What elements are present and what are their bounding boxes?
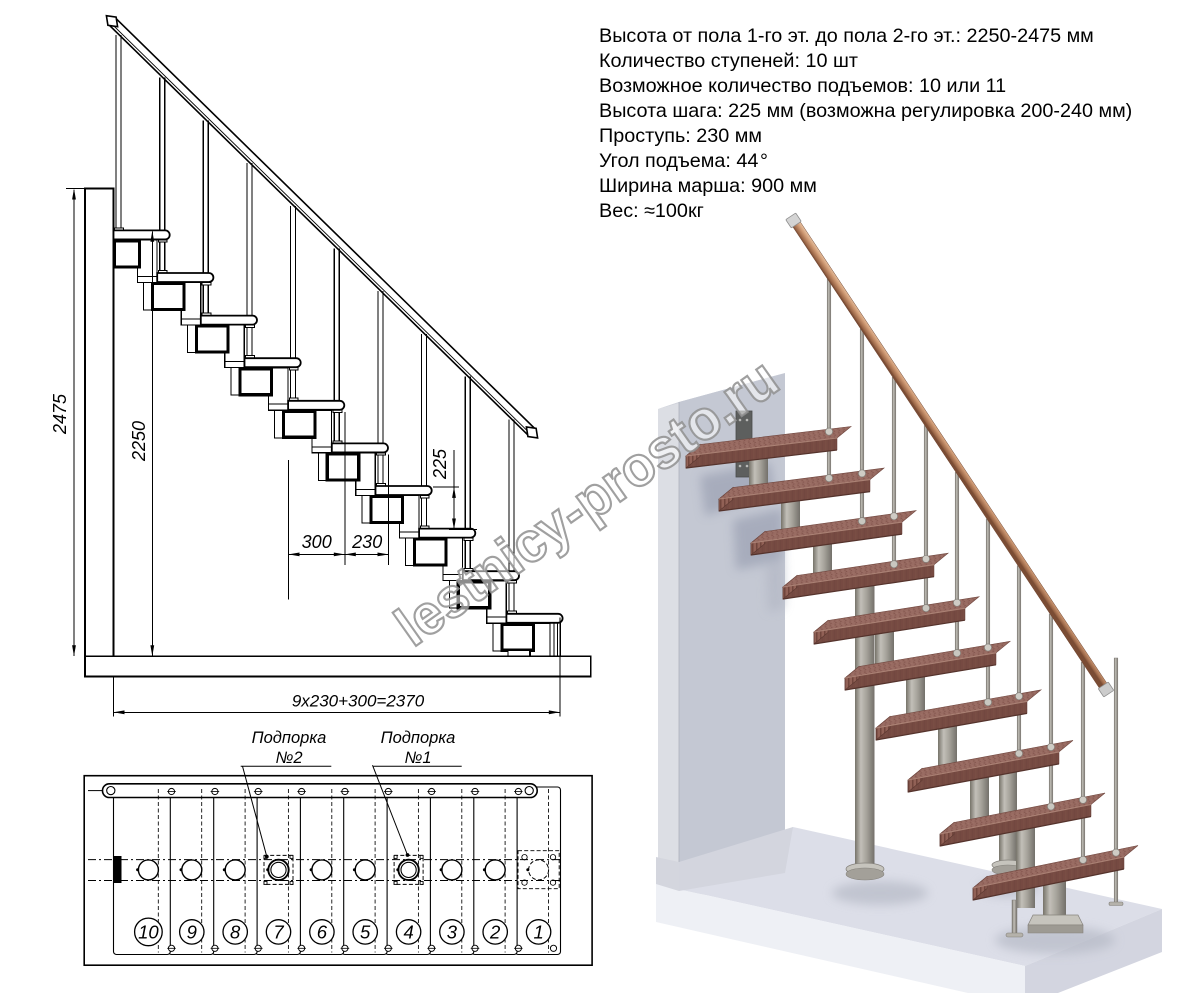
svg-text:Ширина марша: 900 мм: Ширина марша: 900 мм <box>599 175 817 197</box>
svg-text:Возможное количество подъемов:: Возможное количество подъемов: 10 или 11 <box>599 75 1006 97</box>
svg-text:№2: №2 <box>275 749 302 767</box>
svg-text:Подпорка: Подпорка <box>252 729 327 747</box>
svg-text:9: 9 <box>187 921 197 942</box>
svg-text:230: 230 <box>351 532 382 552</box>
svg-text:Угол подъема: 44 °: Угол подъема: 44 ° <box>599 150 768 172</box>
svg-text:10: 10 <box>138 921 159 942</box>
svg-text:2475: 2475 <box>50 393 70 435</box>
svg-text:Количество ступеней: 10 шт: Количество ступеней: 10 шт <box>599 50 858 72</box>
svg-text:1: 1 <box>533 921 543 942</box>
svg-text:3: 3 <box>447 921 458 942</box>
svg-text:Высота шага: 225 мм (возможна: Высота шага: 225 мм (возможна регулировк… <box>599 100 1132 122</box>
svg-text:7: 7 <box>273 921 284 942</box>
svg-text:Высота от пола 1-го эт. до пол: Высота от пола 1-го эт. до пола 2-го эт.… <box>599 25 1094 47</box>
svg-text:9x230+300=2370: 9x230+300=2370 <box>292 692 425 711</box>
svg-text:6: 6 <box>317 921 328 942</box>
svg-text:4: 4 <box>403 921 413 942</box>
svg-text:8: 8 <box>230 921 241 942</box>
svg-text:2: 2 <box>489 921 501 942</box>
svg-text:№1: №1 <box>404 749 431 767</box>
svg-text:5: 5 <box>360 921 371 942</box>
svg-text:Подпорка: Подпорка <box>381 729 456 747</box>
svg-text:300: 300 <box>302 532 332 552</box>
svg-text:225: 225 <box>430 448 450 480</box>
svg-text:Вес: ≈100кг: Вес: ≈100кг <box>599 200 704 222</box>
svg-text:2250: 2250 <box>129 421 149 462</box>
svg-text:Проступь: 230 мм: Проступь: 230 мм <box>599 125 762 147</box>
